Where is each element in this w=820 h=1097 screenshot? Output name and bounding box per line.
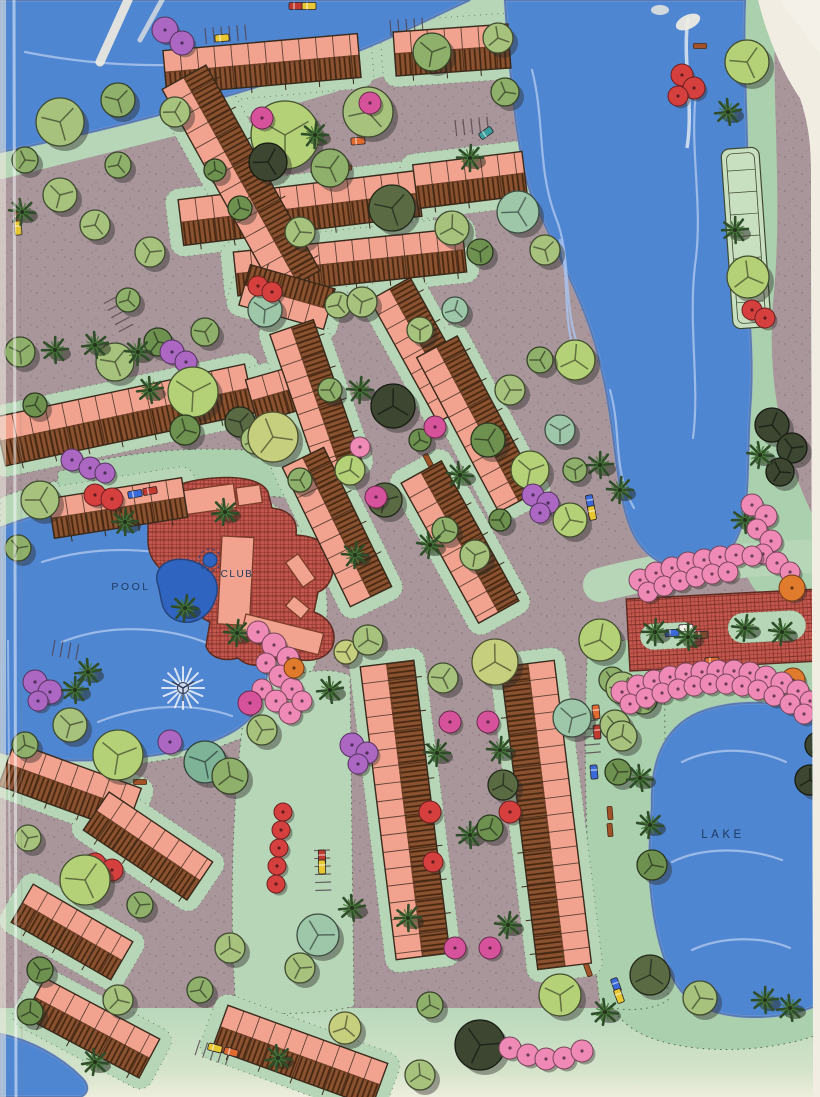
flower-center [740, 684, 743, 687]
palm-crown [276, 1056, 280, 1060]
car-windshield [356, 138, 357, 145]
stall-line [315, 882, 331, 883]
palm-crown [93, 343, 97, 347]
flower-center [668, 675, 671, 678]
car-body [289, 3, 303, 10]
site-plan-map: POOL CLUB LAKE [0, 0, 820, 1097]
palm-crown [358, 388, 362, 392]
flower-center [260, 116, 263, 119]
car-windshield [592, 710, 599, 711]
flower-center [260, 687, 263, 690]
palm-crown [458, 473, 462, 477]
porch-tick [319, 81, 320, 87]
porch-tick [285, 84, 286, 90]
flower-center [676, 94, 679, 97]
palm-crown [223, 510, 227, 514]
flower-center [508, 1046, 511, 1049]
flower-center [486, 720, 489, 723]
palm-crown [53, 348, 57, 352]
flower-center [270, 290, 273, 293]
flower-center [103, 471, 106, 474]
flower-center [646, 590, 649, 593]
palm-crown [350, 906, 354, 910]
flower-center [708, 682, 711, 685]
palm-crown [148, 388, 152, 392]
paper-blotch [651, 5, 669, 15]
car-body [302, 3, 316, 10]
palm-crown [618, 488, 622, 492]
tree-branch [501, 212, 518, 213]
tree-branch [419, 1063, 420, 1075]
palm-crown [598, 463, 602, 467]
flower-center [431, 860, 434, 863]
flower-center [724, 682, 727, 685]
flower-center [279, 828, 282, 831]
flower-center [374, 495, 377, 498]
parked-car [215, 34, 230, 42]
flower-center [264, 661, 267, 664]
flower-center [769, 539, 772, 542]
flower-center [790, 586, 793, 589]
flower-center [652, 679, 655, 682]
palm-crown [93, 1060, 97, 1064]
flower-center [448, 720, 451, 723]
flower-center [662, 584, 665, 587]
flower-center [686, 561, 689, 564]
flower-center [453, 946, 456, 949]
flower-center [710, 572, 713, 575]
site-plan-page: POOL CLUB LAKE [0, 0, 820, 1097]
palm-crown [435, 751, 439, 755]
flower-center [546, 501, 549, 504]
palm-crown [86, 670, 90, 674]
flower-center [748, 671, 751, 674]
flower-center [281, 810, 284, 813]
palm-crown [183, 606, 187, 610]
flower-center [670, 566, 673, 569]
palm-crown [328, 688, 332, 692]
tree-branch [30, 1002, 31, 1012]
flower-center [488, 946, 491, 949]
porch-tick [424, 276, 425, 282]
flower-center [275, 864, 278, 867]
flower-center [290, 687, 293, 690]
parked-car [590, 765, 598, 780]
palm-crown [406, 916, 410, 920]
palm-crown [743, 518, 747, 522]
flower-center [428, 810, 431, 813]
flower-center [676, 687, 679, 690]
palm-crown [780, 630, 784, 634]
flower-center [300, 699, 303, 702]
porch-tick [458, 273, 459, 279]
flower-center [692, 684, 695, 687]
tree-branch [429, 995, 430, 1005]
flower-center [272, 643, 275, 646]
flower-center [764, 514, 767, 517]
flower-center [163, 28, 166, 31]
tree-branch [214, 161, 215, 170]
palm-crown [733, 228, 737, 232]
flower-center [508, 810, 511, 813]
lake-label: LAKE [701, 829, 744, 841]
porch-tick [353, 78, 354, 84]
palm-crown [123, 520, 127, 524]
tree-branch [300, 232, 312, 233]
flower-center [764, 675, 767, 678]
flower-center [580, 1049, 583, 1052]
spa [203, 553, 217, 567]
palm-crown [758, 453, 762, 457]
tree-branch [140, 904, 150, 905]
palm-crown [686, 635, 690, 639]
flower-center [788, 570, 791, 573]
bench [694, 44, 707, 49]
flower-center [756, 688, 759, 691]
flower-center [278, 674, 281, 677]
palm-crown [603, 1010, 607, 1014]
flower-center [70, 458, 73, 461]
club-label: CLUB [221, 569, 254, 580]
flower-center [433, 425, 436, 428]
flower-center [628, 702, 631, 705]
palm-crown [653, 630, 657, 634]
tree-branch [780, 14, 790, 20]
torn-corner [780, 0, 820, 54]
palm-crown [428, 543, 432, 547]
tree-branch [811, 745, 818, 753]
flower-center [277, 846, 280, 849]
flower-center [684, 672, 687, 675]
palm-crown [498, 748, 502, 752]
flower-center [36, 699, 39, 702]
flower-center [654, 571, 657, 574]
tree-branch [474, 439, 488, 440]
palm-crown [638, 776, 642, 780]
tree-branch [262, 729, 274, 730]
clubhouse-building [217, 536, 254, 626]
flower-center [110, 497, 113, 500]
flower-center [680, 73, 683, 76]
palm-crown [648, 823, 652, 827]
flower-center [763, 316, 766, 319]
flower-center [48, 690, 51, 693]
paper-crease [14, 0, 16, 1097]
flower-center [694, 575, 697, 578]
flower-center [644, 696, 647, 699]
flower-center [33, 680, 36, 683]
palm-crown [468, 156, 472, 160]
car-body [590, 765, 598, 780]
car-windshield [590, 770, 597, 771]
parked-car [289, 3, 303, 10]
flower-center [775, 561, 778, 564]
flower-center [660, 691, 663, 694]
tree-branch [300, 967, 312, 968]
porch-tick [251, 87, 252, 93]
flower-center [734, 553, 737, 556]
paper-left-margin [0, 0, 6, 1097]
flower-center [692, 86, 695, 89]
flower-center [750, 503, 753, 506]
palm-crown [726, 110, 730, 114]
tree-branch [229, 936, 230, 948]
flower-center [678, 579, 681, 582]
tree-branch [192, 392, 193, 412]
flower-center [796, 689, 799, 692]
car-body [215, 34, 230, 42]
clubhouse-building [236, 485, 262, 506]
flower-center [531, 493, 534, 496]
car-body [318, 860, 325, 874]
flower-center [732, 669, 735, 672]
porch-tick [390, 280, 391, 286]
palm-crown [136, 350, 140, 354]
flower-center [750, 554, 753, 557]
flower-center [636, 684, 639, 687]
flower-center [718, 555, 721, 558]
flower-center [750, 308, 753, 311]
flower-center [802, 712, 805, 715]
flower-center [358, 445, 361, 448]
flower-center [292, 666, 295, 669]
tree-branch [503, 773, 504, 785]
flower-center [356, 762, 359, 765]
flower-center [726, 570, 729, 573]
palm-crown [788, 1006, 792, 1010]
car-windshield [220, 35, 221, 42]
palm-crown [313, 133, 317, 137]
parked-car [302, 3, 316, 10]
flower-center [780, 681, 783, 684]
palm-crown [506, 923, 510, 927]
palm-crown [73, 688, 77, 692]
flower-center [170, 350, 173, 353]
flower-center [274, 699, 277, 702]
tree-branch [25, 160, 35, 161]
flower-center [716, 669, 719, 672]
palm-crown [235, 631, 239, 635]
tree-branch [431, 677, 443, 678]
flower-center [526, 1053, 529, 1056]
flower-center [788, 702, 791, 705]
flower-center [93, 493, 96, 496]
palm-crown [763, 998, 767, 1002]
flower-center [544, 1057, 547, 1060]
flower-center [248, 701, 251, 704]
palm-crown [353, 553, 357, 557]
flower-center [700, 670, 703, 673]
flower-center [562, 1056, 565, 1059]
parked-car [318, 860, 325, 874]
flower-center [288, 711, 291, 714]
flower-center [755, 527, 758, 530]
flower-center [274, 882, 277, 885]
flower-center [256, 284, 259, 287]
bench [607, 823, 613, 836]
stall-line [315, 890, 331, 891]
lake-fountain [162, 667, 204, 709]
flower-center [620, 690, 623, 693]
flower-center [184, 360, 187, 363]
flower-center [256, 630, 259, 633]
tree-branch [780, 472, 791, 473]
flower-center [368, 101, 371, 104]
flower-center [110, 868, 113, 871]
flower-center [350, 743, 353, 746]
flower-center [88, 466, 91, 469]
drawing-area [0, 0, 820, 1097]
flower-center [808, 699, 811, 702]
flower-center [180, 41, 183, 44]
tree-branch [253, 162, 268, 163]
flower-center [365, 751, 368, 754]
flower-center [702, 558, 705, 561]
flower-center [772, 694, 775, 697]
tree-canopy [795, 765, 820, 795]
tree-branch [814, 735, 818, 745]
pool-label: POOL [111, 581, 150, 593]
palm-crown [743, 626, 747, 630]
flower-center [538, 511, 541, 514]
flower-center [168, 740, 171, 743]
palm-crown [468, 833, 472, 837]
tree-branch [575, 470, 576, 480]
bench [607, 806, 613, 819]
flower-center [638, 578, 641, 581]
